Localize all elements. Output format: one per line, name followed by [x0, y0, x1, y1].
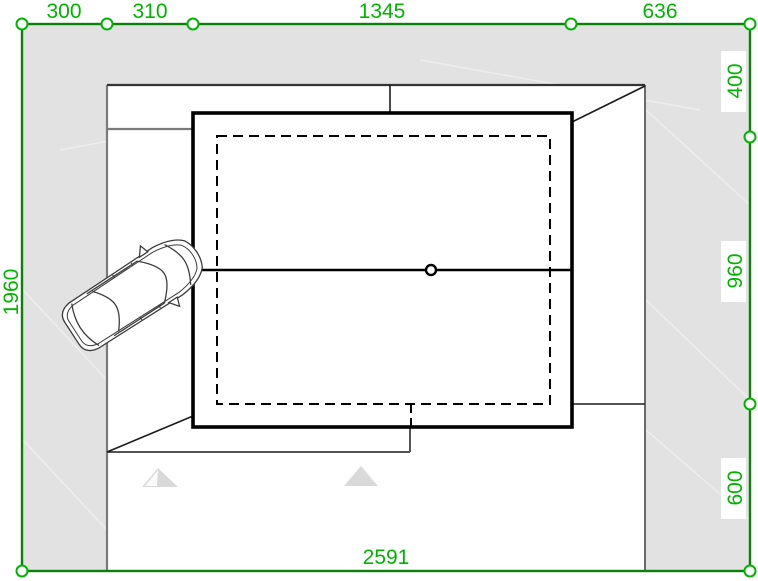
boundary-marker-icon	[745, 19, 756, 30]
dim-label-top-2: 310	[132, 0, 167, 23]
dim-label-bottom-1: 2591	[363, 546, 410, 569]
dim-label-top-4: 636	[642, 0, 677, 23]
dim-label-left-1: 1960	[0, 269, 23, 316]
house-lot-area	[107, 85, 645, 571]
boundary-marker-icon	[17, 19, 28, 30]
boundary-marker-icon	[188, 19, 199, 30]
boundary-marker-icon	[17, 566, 28, 577]
dim-label-right-1: 400	[724, 63, 747, 98]
dim-label-top-3: 1345	[359, 0, 406, 23]
boundary-marker-icon	[745, 132, 756, 143]
dim-label-right-3: 600	[724, 470, 747, 505]
boundary-marker-icon	[745, 399, 756, 410]
boundary-marker-icon	[745, 566, 756, 577]
ridge-vent-icon	[426, 265, 436, 275]
site-plan: 300 310 1345 636 400 960 600 1960 2591	[0, 0, 758, 581]
boundary-marker-icon	[102, 19, 113, 30]
dim-label-top-1: 300	[46, 0, 81, 23]
site-plan-canvas: 300 310 1345 636 400 960 600 1960 2591	[0, 0, 758, 581]
boundary-marker-icon	[566, 19, 577, 30]
dim-label-right-2: 960	[724, 253, 747, 288]
